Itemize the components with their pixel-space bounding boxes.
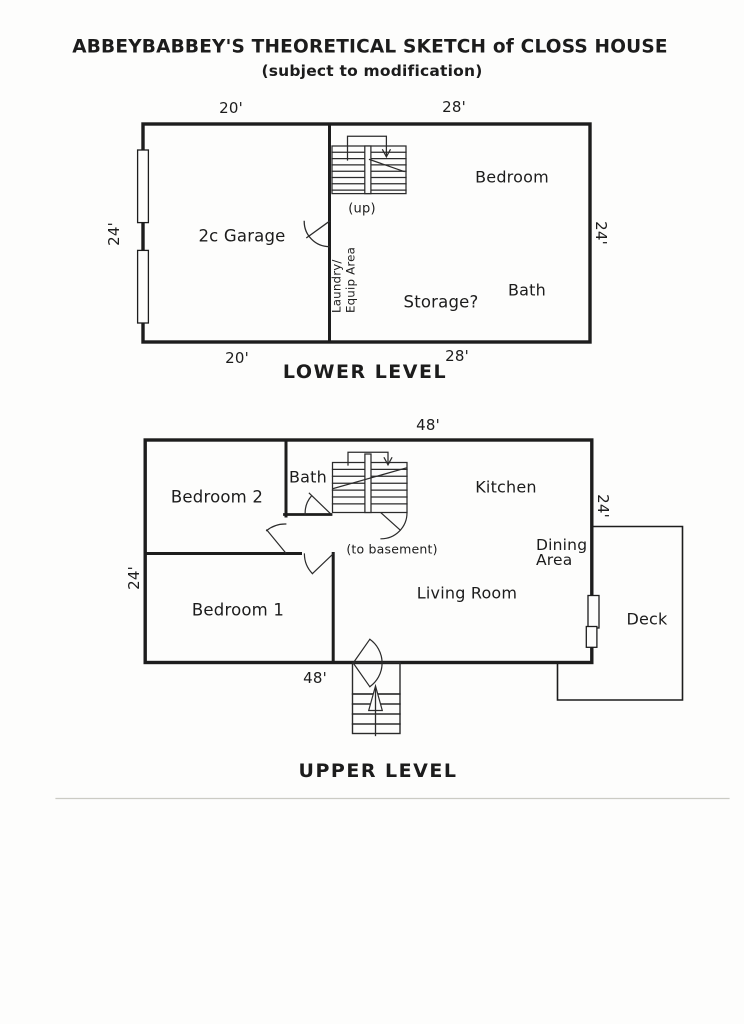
upper-dim-top: 48' <box>416 416 440 434</box>
lower-dim-left: 24' <box>105 222 123 246</box>
upper-dim-left: 24' <box>125 566 143 590</box>
upper-bath-label: Bath <box>289 468 327 487</box>
stairs-up-note: (up) <box>348 202 375 217</box>
floorplan-linework <box>0 0 744 1024</box>
bath-door-swing <box>305 493 331 514</box>
dining-area-label: Dining Area <box>536 538 587 567</box>
lower-level-caption: LOWER LEVEL <box>283 361 447 383</box>
stairs-basement-note: (to basement) <box>346 542 437 557</box>
laundry-line2: Equip Area <box>344 247 358 313</box>
lower-dim-top-left: 20' <box>219 99 243 117</box>
upper-staircase <box>333 452 408 512</box>
bedroom1-door-swing <box>304 554 333 574</box>
upper-dim-bottom: 48' <box>303 669 327 687</box>
lower-staircase <box>332 136 406 193</box>
lower-door-swing <box>304 221 329 247</box>
page-subtitle: (subject to modification) <box>261 62 482 80</box>
scanned-floorplan-page: ABBEYBABBEY'S THEORETICAL SKETCH of CLOS… <box>0 0 744 1024</box>
sliding-door-marker <box>586 596 599 648</box>
laundry-line1: Laundry/ <box>331 247 345 313</box>
lower-dim-bottom-left: 20' <box>225 349 249 367</box>
kitchen-label: Kitchen <box>475 478 537 497</box>
lower-dim-bottom-right: 28' <box>445 347 469 365</box>
entry-stairs <box>353 639 401 735</box>
bedroom1-label: Bedroom 1 <box>192 601 284 620</box>
upper-dim-right: 24' <box>594 494 612 518</box>
lower-dim-right: 24' <box>592 221 610 245</box>
lower-dim-top-right: 28' <box>442 98 466 116</box>
lower-bedroom-label: Bedroom <box>475 168 549 187</box>
deck-label: Deck <box>626 610 667 629</box>
page-title: ABBEYBABBEY'S THEORETICAL SKETCH of CLOS… <box>72 37 668 58</box>
laundry-area-label: Laundry/ Equip Area <box>331 247 358 313</box>
garage-label: 2c Garage <box>198 227 285 246</box>
dining-line2: Area <box>536 553 587 568</box>
upper-level-caption: UPPER LEVEL <box>299 760 458 782</box>
lower-bath-label: Bath <box>508 281 546 300</box>
basement-door-swing <box>381 513 407 539</box>
bedroom2-door-swing <box>267 524 286 553</box>
bedroom2-label: Bedroom 2 <box>171 488 263 507</box>
living-room-label: Living Room <box>417 584 517 603</box>
storage-label: Storage? <box>404 293 479 312</box>
upper-plan <box>145 440 682 736</box>
